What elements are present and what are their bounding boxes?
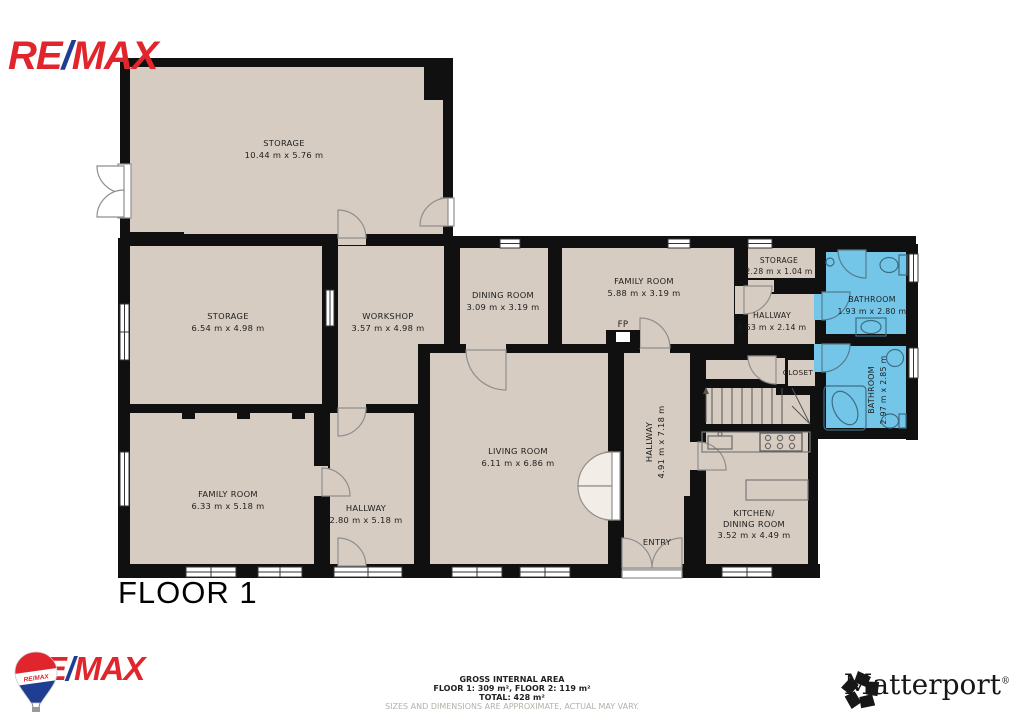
registered-mark: ® (1001, 677, 1010, 687)
window (909, 254, 918, 282)
wall-living-left (418, 344, 426, 574)
door-leaf (97, 190, 124, 217)
window (520, 567, 570, 577)
window (326, 290, 334, 326)
remax-top-slash: / (62, 34, 72, 78)
wall-hall-kitchen-divider-a (694, 352, 702, 386)
door-leaf (97, 166, 124, 193)
wall-dining-family (551, 240, 559, 352)
remax-top-max: MAX (72, 34, 158, 78)
balloon-basket (32, 707, 40, 712)
label-closet: CLOSET (783, 368, 814, 377)
floorplan-drawing: STORAGE10.44 m x 5.76 m STORAGE6.54 m x … (0, 0, 1024, 724)
window (452, 567, 502, 577)
wall-entry-right (684, 496, 694, 574)
wall-bathroom2-bottom (814, 430, 918, 439)
wall-right-storage-a (443, 58, 453, 198)
matterport-icon (838, 668, 884, 714)
wall-top-storage (120, 58, 452, 67)
label-fireplace: FP (618, 320, 629, 330)
matterport-logo: Matterport® (838, 668, 1010, 701)
window (722, 567, 772, 577)
remax-balloon-icon: RE/MAX (12, 650, 60, 714)
window (909, 348, 918, 378)
window (334, 567, 402, 577)
wall-living-top (422, 344, 620, 353)
label-entry: ENTRY (643, 537, 672, 547)
remax-top-re: RE (8, 34, 62, 78)
window (668, 239, 690, 248)
floor-title: FLOOR 1 (118, 575, 258, 611)
wall-stub-2 (237, 411, 250, 419)
entry-threshold (622, 570, 682, 578)
window (748, 239, 772, 248)
wall-row2-bottom (120, 404, 426, 413)
wall-stub-1 (182, 411, 195, 419)
fireplace (606, 330, 640, 348)
remax-bottom-slash: / (66, 650, 74, 687)
remax-logo-top: RE/MAX (8, 34, 158, 79)
remax-bottom-max: MAX (74, 650, 144, 687)
wall-stub-3 (292, 411, 305, 419)
wall-bathrooms-divider (820, 334, 908, 342)
wall-closet-bottom (776, 388, 820, 395)
wall-dining-left (448, 238, 457, 352)
remax-logo-bottom: RE/MAX RE/MAX (12, 650, 144, 688)
window (120, 452, 129, 506)
wall-kitchen-top (694, 424, 818, 432)
window (120, 304, 129, 360)
wall-row2-top-thick (122, 232, 184, 244)
window (500, 239, 520, 248)
floorplan-page: STORAGE10.44 m x 5.76 m STORAGE6.54 m x … (0, 0, 1024, 724)
window (258, 567, 302, 577)
